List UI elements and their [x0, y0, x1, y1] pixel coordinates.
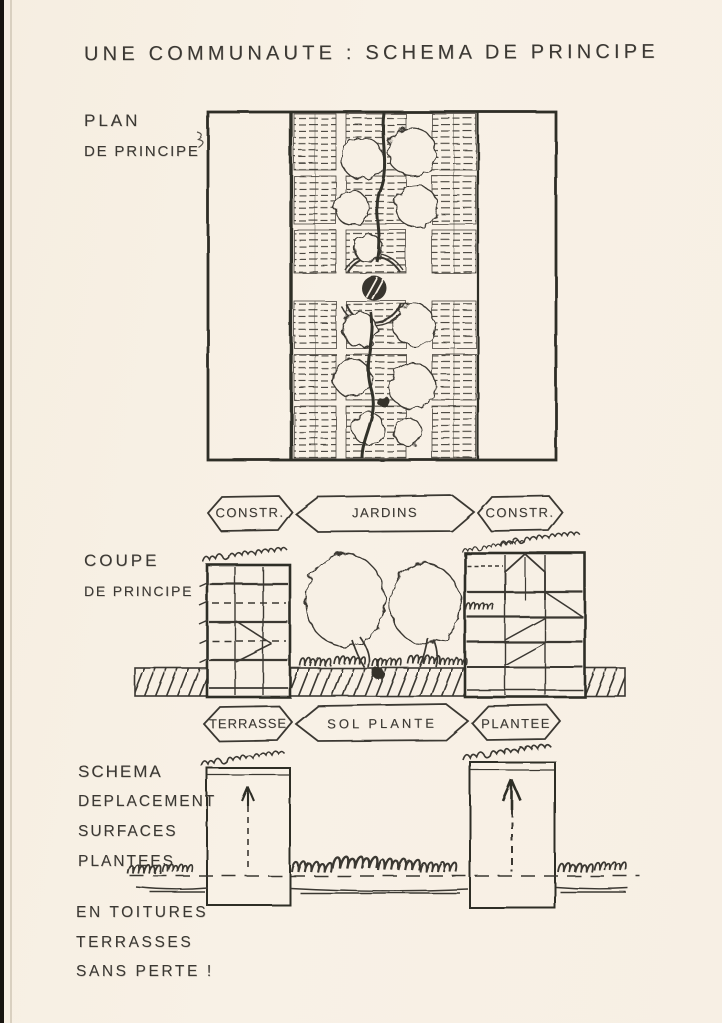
tag-constr-right-label: CONSTR.	[478, 505, 562, 521]
coupe-section-label-line1: COUPE	[84, 551, 159, 571]
schema-label-line-4: PLANTEES	[78, 853, 175, 871]
coupe-trees	[305, 554, 460, 646]
note-line-2: TERRASSES	[76, 934, 193, 952]
coupe-right-building	[462, 532, 585, 697]
schema-label-line-2: DEPLACEMENT	[78, 793, 216, 811]
note-line-3: SANS PERTE !	[76, 963, 214, 981]
tag-constr-left-label: CONSTR.	[208, 505, 292, 521]
scan-edge-strip	[0, 0, 4, 1023]
schema-drawing	[128, 744, 640, 908]
schema-label-line-3: SURFACES	[78, 823, 178, 841]
scan-crease-line	[10, 0, 12, 1023]
note-line-1: EN TOITURES	[76, 904, 208, 922]
plan-section-label-line2: DE PRINCIPE	[84, 143, 200, 160]
tag-terrasse-label: TERRASSE	[204, 716, 292, 732]
page-title: UNE COMMUNAUTE : SCHEMA DE PRINCIPE	[84, 41, 659, 67]
tag-sol-plante-label: SOL PLANTE	[296, 715, 468, 731]
tag-plantee-label: PLANTEE	[472, 716, 560, 732]
schema-label-line-1: SCHEMA	[78, 762, 163, 782]
sketch-page: UNE COMMUNAUTE : SCHEMA DE PRINCIPE PLAN…	[0, 0, 722, 1023]
coupe-section-label-line2: DE PRINCIPE	[84, 583, 193, 599]
coupe-left-building	[199, 547, 290, 697]
tag-jardins-label: JARDINS	[296, 504, 474, 520]
plan-section-label-line1: PLAN	[84, 111, 140, 131]
